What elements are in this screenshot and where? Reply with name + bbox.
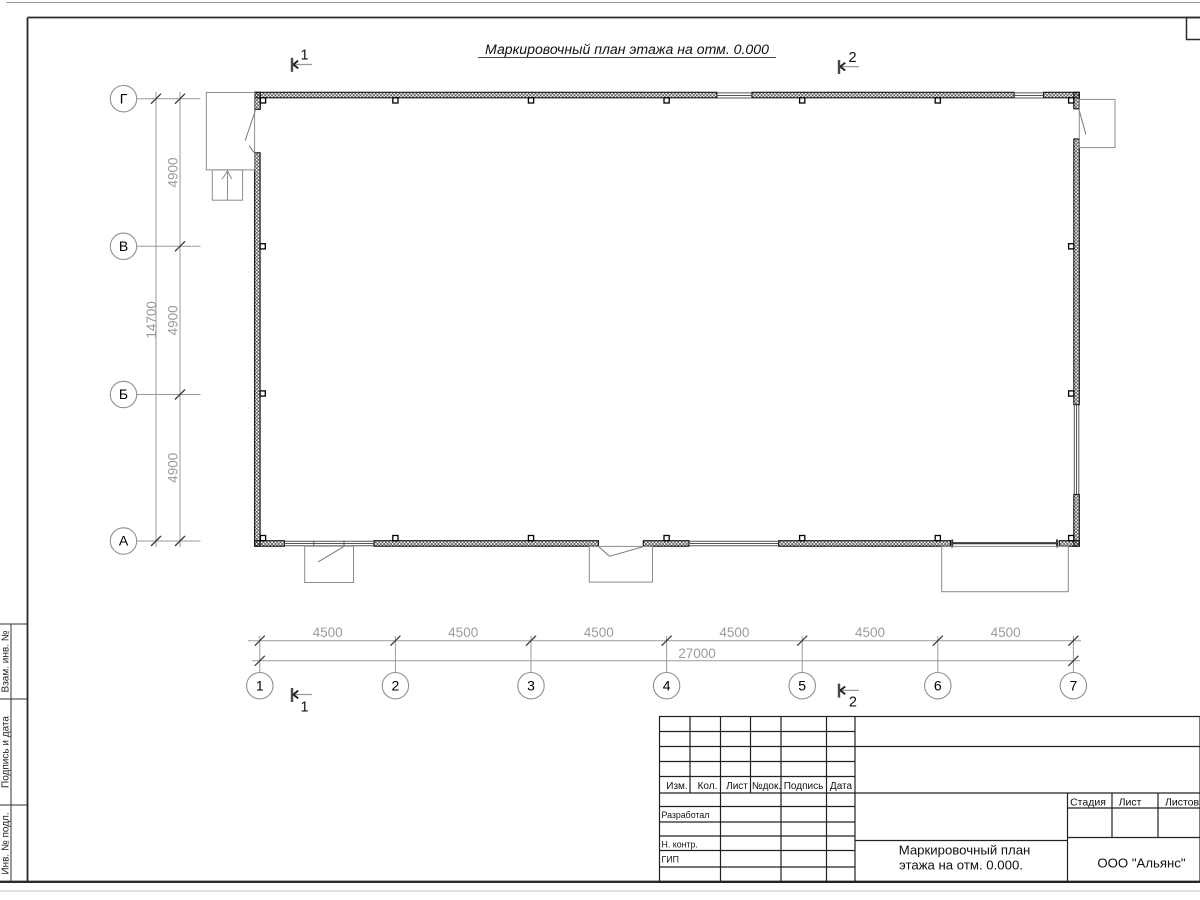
svg-text:4: 4 [663, 677, 671, 693]
svg-text:4500: 4500 [313, 625, 343, 640]
svg-text:Б: Б [119, 386, 128, 402]
svg-text:Маркировочный план: Маркировочный план [899, 843, 1031, 858]
svg-text:Лист: Лист [726, 781, 748, 792]
svg-text:4500: 4500 [719, 625, 749, 640]
svg-text:5: 5 [798, 677, 806, 693]
svg-text:Разработал: Разработал [662, 810, 710, 820]
svg-text:4900: 4900 [166, 453, 181, 483]
svg-text:14700: 14700 [144, 301, 159, 339]
svg-text:Н. контр.: Н. контр. [662, 840, 698, 850]
svg-text:ГИП: ГИП [662, 855, 679, 865]
svg-text:4900: 4900 [166, 157, 181, 187]
svg-text:Маркировочный план этажа на от: Маркировочный план этажа на отм. 0.000 [485, 41, 769, 57]
svg-text:27000: 27000 [678, 646, 716, 661]
svg-text:Листов: Листов [1165, 797, 1200, 809]
svg-text:Подпись и дата: Подпись и дата [1, 716, 12, 788]
svg-text:Инв. № подл.: Инв. № подл. [1, 812, 12, 874]
svg-text:4500: 4500 [584, 625, 614, 640]
svg-text:Г: Г [120, 90, 128, 106]
svg-text:ООО "Альянс": ООО "Альянс" [1097, 856, 1185, 871]
svg-text:4500: 4500 [991, 625, 1021, 640]
svg-text:Подпись: Подпись [784, 781, 824, 792]
svg-text:2: 2 [849, 695, 857, 711]
svg-text:Дата: Дата [830, 781, 853, 792]
svg-text:№док.: №док. [752, 781, 781, 792]
svg-text:этажа на отм. 0.000.: этажа на отм. 0.000. [899, 858, 1023, 873]
svg-text:1: 1 [300, 48, 308, 64]
svg-text:А: А [119, 533, 129, 549]
svg-text:Взам. инв. №: Взам. инв. № [1, 630, 12, 692]
svg-text:4900: 4900 [166, 305, 181, 335]
svg-text:3: 3 [527, 677, 535, 693]
svg-text:2: 2 [848, 50, 856, 66]
svg-text:2: 2 [392, 677, 400, 693]
svg-text:4500: 4500 [448, 625, 478, 640]
svg-text:Лист: Лист [1119, 797, 1142, 809]
svg-text:Изм.: Изм. [666, 781, 687, 792]
svg-text:В: В [119, 238, 128, 254]
svg-text:1: 1 [256, 677, 264, 693]
svg-text:6: 6 [934, 677, 942, 693]
svg-text:7: 7 [1070, 677, 1078, 693]
svg-text:Стадия: Стадия [1070, 797, 1106, 809]
svg-text:Кол.: Кол. [698, 781, 718, 792]
svg-text:1: 1 [300, 700, 308, 716]
svg-text:4500: 4500 [855, 625, 885, 640]
